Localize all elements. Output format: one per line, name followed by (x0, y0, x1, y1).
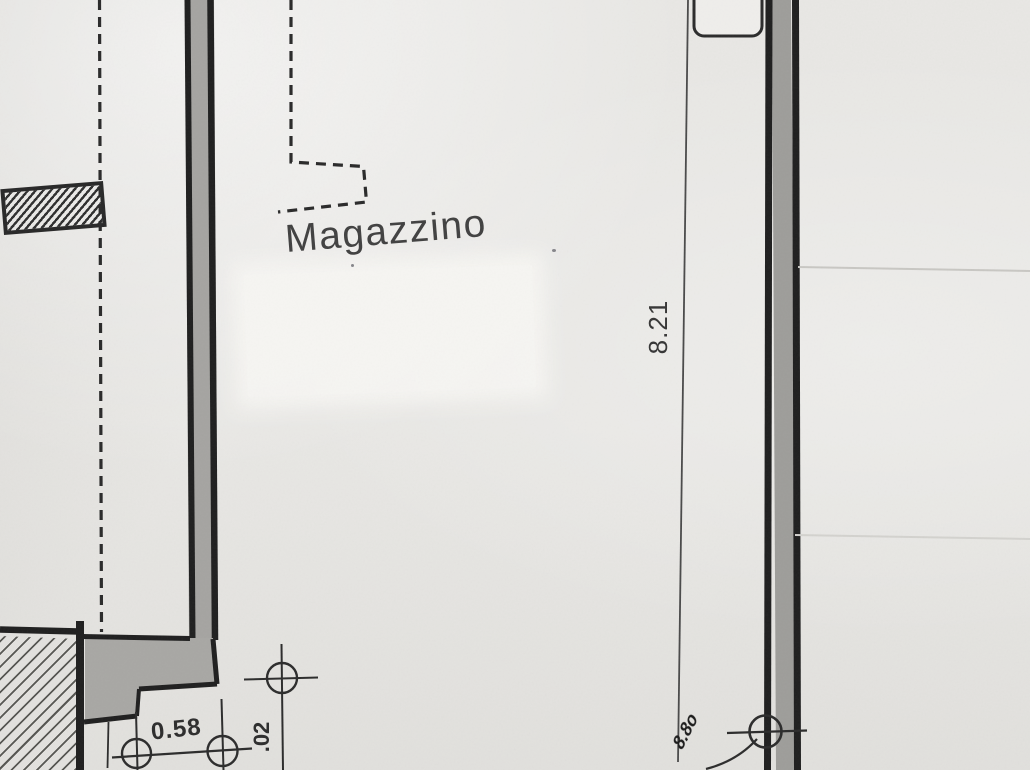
survey-marker-center (208, 699, 238, 770)
boundary-dashed-line (100, 0, 102, 632)
wall-step-top-edge (82, 637, 190, 639)
ground-top-edge (0, 630, 79, 632)
dimension-right-wall-label: 8.21 (643, 282, 673, 372)
extension-line-bottom (108, 722, 109, 768)
leader-arc (706, 739, 757, 769)
faint-guideline-lower (795, 535, 1030, 539)
survey-marker-left (122, 712, 151, 770)
right-wall-inner-edge (768, 0, 770, 770)
wall-step-notch-edge (137, 689, 139, 716)
wall-step-fill (85, 638, 217, 721)
dimension-line-bottom (112, 749, 252, 758)
plan-linework (0, 0, 1030, 770)
dimension-line-right (678, 0, 688, 762)
dimension-bottom-width-label: 0.58 (150, 713, 203, 746)
left-boundary-wall-band (76, 621, 84, 770)
storage-dashed-outline (278, 0, 367, 212)
right-wall-outer-edge (796, 0, 798, 770)
left-wall-outer-edge (211, 0, 216, 640)
dimension-bottom-height-label: .02 (249, 705, 275, 769)
ink-speck (351, 264, 354, 267)
floor-plan-scan: Magazzino 8.21 0.58 .02 8.8o (0, 0, 1030, 770)
ink-speck (552, 249, 556, 252)
door-fixture-symbol (694, 0, 762, 36)
faint-guideline-upper (798, 267, 1030, 271)
